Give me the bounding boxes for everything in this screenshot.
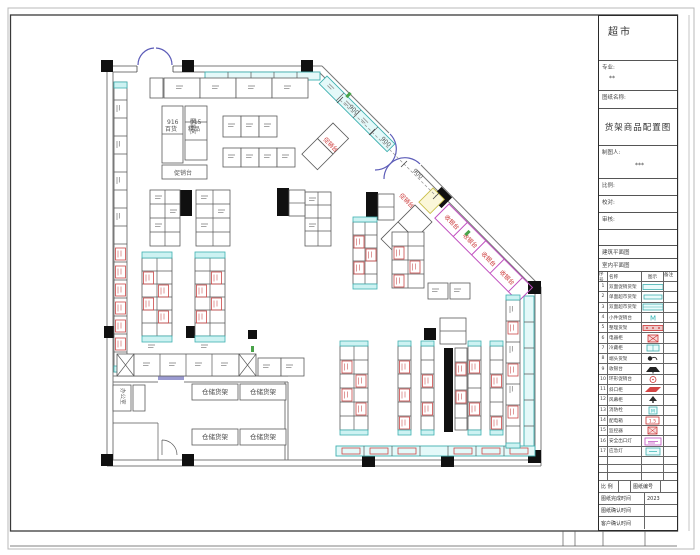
- legend-row: 15 监控器: [599, 426, 677, 436]
- storage-rack-label: 仓储货架: [250, 387, 277, 396]
- legend-row: 4 小件促销台 M: [599, 313, 677, 323]
- drafter-label: 制图人:: [602, 150, 620, 156]
- legend-row: 6 电器柜: [599, 333, 677, 343]
- legend-no: 16: [599, 436, 608, 445]
- gondola-run: [195, 252, 225, 347]
- legend-note: [664, 436, 677, 445]
- legend-row: 11 斜口柜: [599, 385, 677, 395]
- legend-no: 15: [599, 426, 608, 435]
- svg-text:M: M: [651, 408, 655, 414]
- legend-row: 1 双面促销货架: [599, 282, 677, 292]
- emergency-light-icon: [642, 447, 664, 456]
- freezer-icon: [642, 344, 664, 353]
- legend-no: 12: [599, 395, 608, 404]
- legend-note: [664, 416, 677, 425]
- legend-note: [664, 282, 677, 291]
- wall-shelf-right: [524, 296, 534, 450]
- footer-number-value: [661, 481, 677, 492]
- promo-counter-label: 促销台: [174, 169, 192, 177]
- legend-row: 16 安全出口灯: [599, 436, 677, 446]
- exit-light-icon: [642, 436, 664, 445]
- footer-client-value: [645, 517, 677, 529]
- svg-text:M: M: [650, 315, 656, 323]
- appliance-cabinet-icon: [642, 333, 664, 342]
- legend-no: 9: [599, 364, 608, 373]
- legend-name: 配电箱: [608, 416, 642, 425]
- footer-confirm-value: [645, 505, 677, 516]
- legend-header-name: 名称: [608, 272, 642, 281]
- legend-row: 12 风幕柜: [599, 395, 677, 405]
- footer-scale-value: [619, 481, 631, 492]
- legend-row: 9 收银台: [599, 364, 677, 374]
- dim-text: 900: [411, 168, 424, 181]
- floor-plan: 收银台 收银台 收银台 收银台 促销台 促销台 900 900 900 916: [0, 0, 700, 555]
- legend-note: [664, 395, 677, 404]
- endcap-shelf-icon: [642, 354, 664, 363]
- sheet-frame: [8, 8, 694, 549]
- bottom-shelf-row: [117, 354, 304, 376]
- legend-row: 17 应急灯: [599, 447, 677, 457]
- footer-client-row: 客户确认时间: [599, 517, 677, 529]
- title-block: 超市 专业: ** 图纸名称: 货架商品配置图 制图人: *** 比例: 校对:…: [598, 15, 678, 531]
- storage-rack-label: 仓储货架: [202, 432, 229, 441]
- scale-label: 比例:: [599, 179, 677, 196]
- office-label: 办公室: [119, 388, 127, 405]
- tidy-shelf-icon: [642, 323, 664, 332]
- legend-name: 环形促销台: [608, 375, 642, 384]
- department-block: 916 百货 915 精品 促销台: [162, 106, 207, 179]
- legend-row: 13 消防栓 M: [599, 406, 677, 416]
- gondola-run: [392, 232, 424, 288]
- legend-row: 7 冷藏柜: [599, 344, 677, 354]
- footer-scale-row: 比 例 图纸编号: [599, 481, 677, 493]
- legend-note: [664, 375, 677, 384]
- drawing-name: 货架商品配置图: [599, 109, 677, 146]
- legend-header-no: 序号: [599, 272, 608, 281]
- legend-note: [664, 447, 677, 456]
- legend-name: 双面促销货架: [608, 282, 642, 291]
- legend-name: 整理货架: [608, 323, 642, 332]
- legend-no: 2: [599, 292, 608, 301]
- legend-no: 3: [599, 303, 608, 312]
- footer-confirm-row: 图纸确认时间: [599, 505, 677, 517]
- cashier-desk-icon: [642, 364, 664, 373]
- arch-ref: 建筑平面图: [599, 246, 677, 259]
- legend-no: 5: [599, 323, 608, 332]
- storage-rack-label: 仓储货架: [202, 387, 229, 396]
- gondola-run: [506, 295, 520, 448]
- dimension-line: 900 900 900: [337, 97, 439, 199]
- footer-confirm-label: 图纸确认时间: [599, 505, 645, 516]
- legend-name: 消防栓: [608, 406, 642, 415]
- legend-note: [664, 313, 677, 322]
- legend-no: 4: [599, 313, 608, 322]
- legend-note: [664, 354, 677, 363]
- footer-finish-row: 图纸完成时间 2023: [599, 493, 677, 505]
- legend-no: 14: [599, 416, 608, 425]
- legend-note: [664, 385, 677, 394]
- gondola-run: [398, 341, 411, 435]
- dept-name: 百货: [165, 125, 177, 133]
- storage-rack-label: 仓储货架: [250, 432, 277, 441]
- partition-wall: [444, 348, 453, 432]
- legend-empty-row: [599, 473, 677, 481]
- major-label: 专业:: [602, 65, 615, 71]
- drafter-section: 制图人: ***: [599, 146, 677, 179]
- drafter-value: ***: [602, 162, 677, 169]
- legend-row: 2 单面超市货架: [599, 292, 677, 302]
- wall-shelf-bottom: [336, 446, 535, 456]
- legend-no: 13: [599, 406, 608, 415]
- svg-text:1.5: 1.5: [649, 419, 656, 425]
- gondola-run: [340, 341, 368, 435]
- legend-name: 应急灯: [608, 447, 642, 456]
- proof-label: 校对:: [599, 196, 677, 213]
- gondola-run: [353, 217, 377, 289]
- legend-name: 安全出口灯: [608, 436, 642, 445]
- legend-note: [664, 333, 677, 342]
- footer-finish-value: 2023: [645, 493, 677, 504]
- legend-no: 11: [599, 385, 608, 394]
- legend-row: 14 配电箱 1.5: [599, 416, 677, 426]
- legend-no: 17: [599, 447, 608, 456]
- legend-name: 端头货架: [608, 354, 642, 363]
- gondola-run: [142, 252, 172, 347]
- major-section: 专业: **: [599, 61, 677, 91]
- legend-name: 风幕柜: [608, 395, 642, 404]
- legend-name: 收银台: [608, 364, 642, 373]
- legend-name: 电器柜: [608, 333, 642, 342]
- legend-note: [664, 426, 677, 435]
- legend-row: 8 端头货架: [599, 354, 677, 364]
- legend-name: 小件促销台: [608, 313, 642, 322]
- air-curtain-icon: [642, 395, 664, 404]
- legend-row: 5 整理货架: [599, 323, 677, 333]
- legend-header: 序号 名称 图示 备注: [599, 272, 677, 282]
- legend-note: [664, 303, 677, 312]
- legend-note: [664, 406, 677, 415]
- footer-scale-label: 比 例: [599, 481, 619, 492]
- slant-cabinet-icon: [642, 385, 664, 394]
- storage-area: 仓储货架 仓储货架 仓储货架 仓储货架 办公室: [113, 384, 286, 445]
- power-box-icon: 1.5: [642, 416, 664, 425]
- legend-no: 6: [599, 333, 608, 342]
- fire-hydrant-icon: M: [642, 406, 664, 415]
- storage-room-door: [162, 440, 177, 455]
- legend-note: [664, 292, 677, 301]
- dept-code: 916: [167, 119, 179, 126]
- legend-name: 冷藏柜: [608, 344, 642, 353]
- drawing-sheet: 收银台 收银台 收银台 收银台 促销台 促销台 900 900 900 916: [0, 0, 700, 555]
- double-shelf-icon: [642, 303, 664, 312]
- drawing-name-label: 图纸名称:: [599, 91, 677, 109]
- left-wall-gondola: [114, 82, 127, 372]
- legend-note: [664, 323, 677, 332]
- footer-client-label: 客户确认时间: [599, 517, 645, 529]
- major-value: **: [609, 75, 677, 82]
- project-title: 超市: [599, 16, 677, 61]
- legend-empty-row: [599, 465, 677, 473]
- gondola-run: [468, 341, 481, 435]
- legend-no: 10: [599, 375, 608, 384]
- promo-table-icon: M: [642, 313, 664, 322]
- legend-row: 3 双面超市货架: [599, 303, 677, 313]
- main-entrance-door: [138, 48, 172, 65]
- legend-note: [664, 344, 677, 353]
- camera-icon: [642, 426, 664, 435]
- gondola-run: [455, 348, 467, 430]
- empty-cell: [599, 230, 677, 246]
- bottom-ruler-strip: [10, 531, 677, 546]
- legend-header-note: 备注: [664, 272, 677, 281]
- legend-name: 斜口柜: [608, 385, 642, 394]
- legend-no: 8: [599, 354, 608, 363]
- gondola-run: [421, 341, 434, 435]
- zone-label: 服装区: [189, 118, 197, 135]
- footer-number-label: 图纸编号: [631, 481, 661, 492]
- footer-finish-label: 图纸完成时间: [599, 493, 645, 504]
- legend-empty-row: [599, 457, 677, 465]
- interior-ref: 室内平面图: [599, 259, 677, 272]
- legend-row: 10 环形促销台: [599, 375, 677, 385]
- legend-name: 双面超市货架: [608, 303, 642, 312]
- legend-no: 7: [599, 344, 608, 353]
- legend-name: 单面超市货架: [608, 292, 642, 301]
- single-shelf-icon: [642, 292, 664, 301]
- legend-note: [664, 364, 677, 373]
- legend-name: 监控器: [608, 426, 642, 435]
- ring-table-icon: [642, 375, 664, 384]
- legend-header-icon: 图示: [642, 272, 664, 281]
- double-promo-shelf-icon: [642, 282, 664, 291]
- gondola-run: [490, 341, 503, 435]
- legend-no: 1: [599, 282, 608, 291]
- audit-label: 审核:: [599, 213, 677, 230]
